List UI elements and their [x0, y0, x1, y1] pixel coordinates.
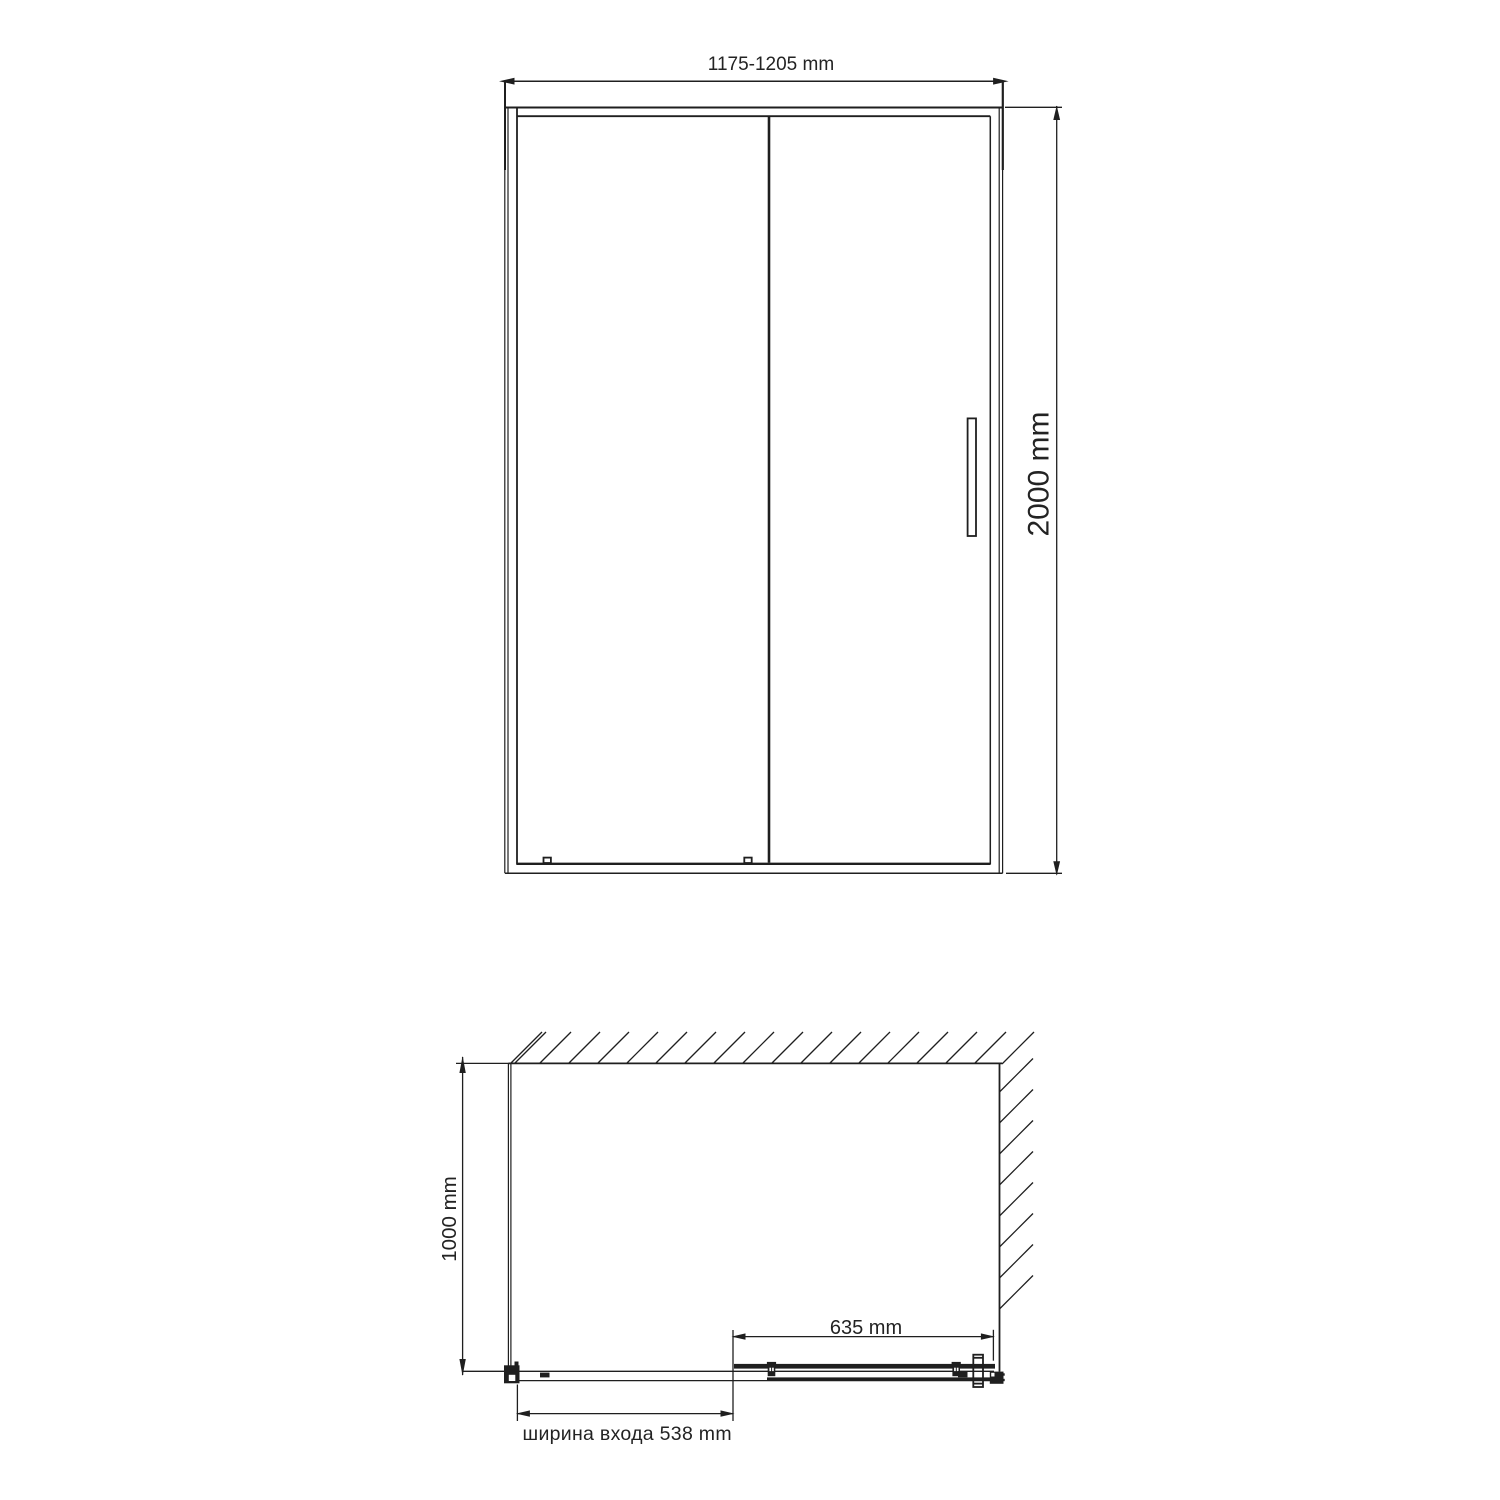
svg-text:1000 mm: 1000 mm — [438, 1176, 461, 1261]
svg-text:1175-1205 mm: 1175-1205 mm — [708, 54, 834, 75]
svg-text:2000 mm: 2000 mm — [1023, 411, 1056, 536]
svg-text:635 mm: 635 mm — [830, 1317, 902, 1339]
svg-text:ширина входа 538 mm: ширина входа 538 mm — [523, 1423, 732, 1445]
